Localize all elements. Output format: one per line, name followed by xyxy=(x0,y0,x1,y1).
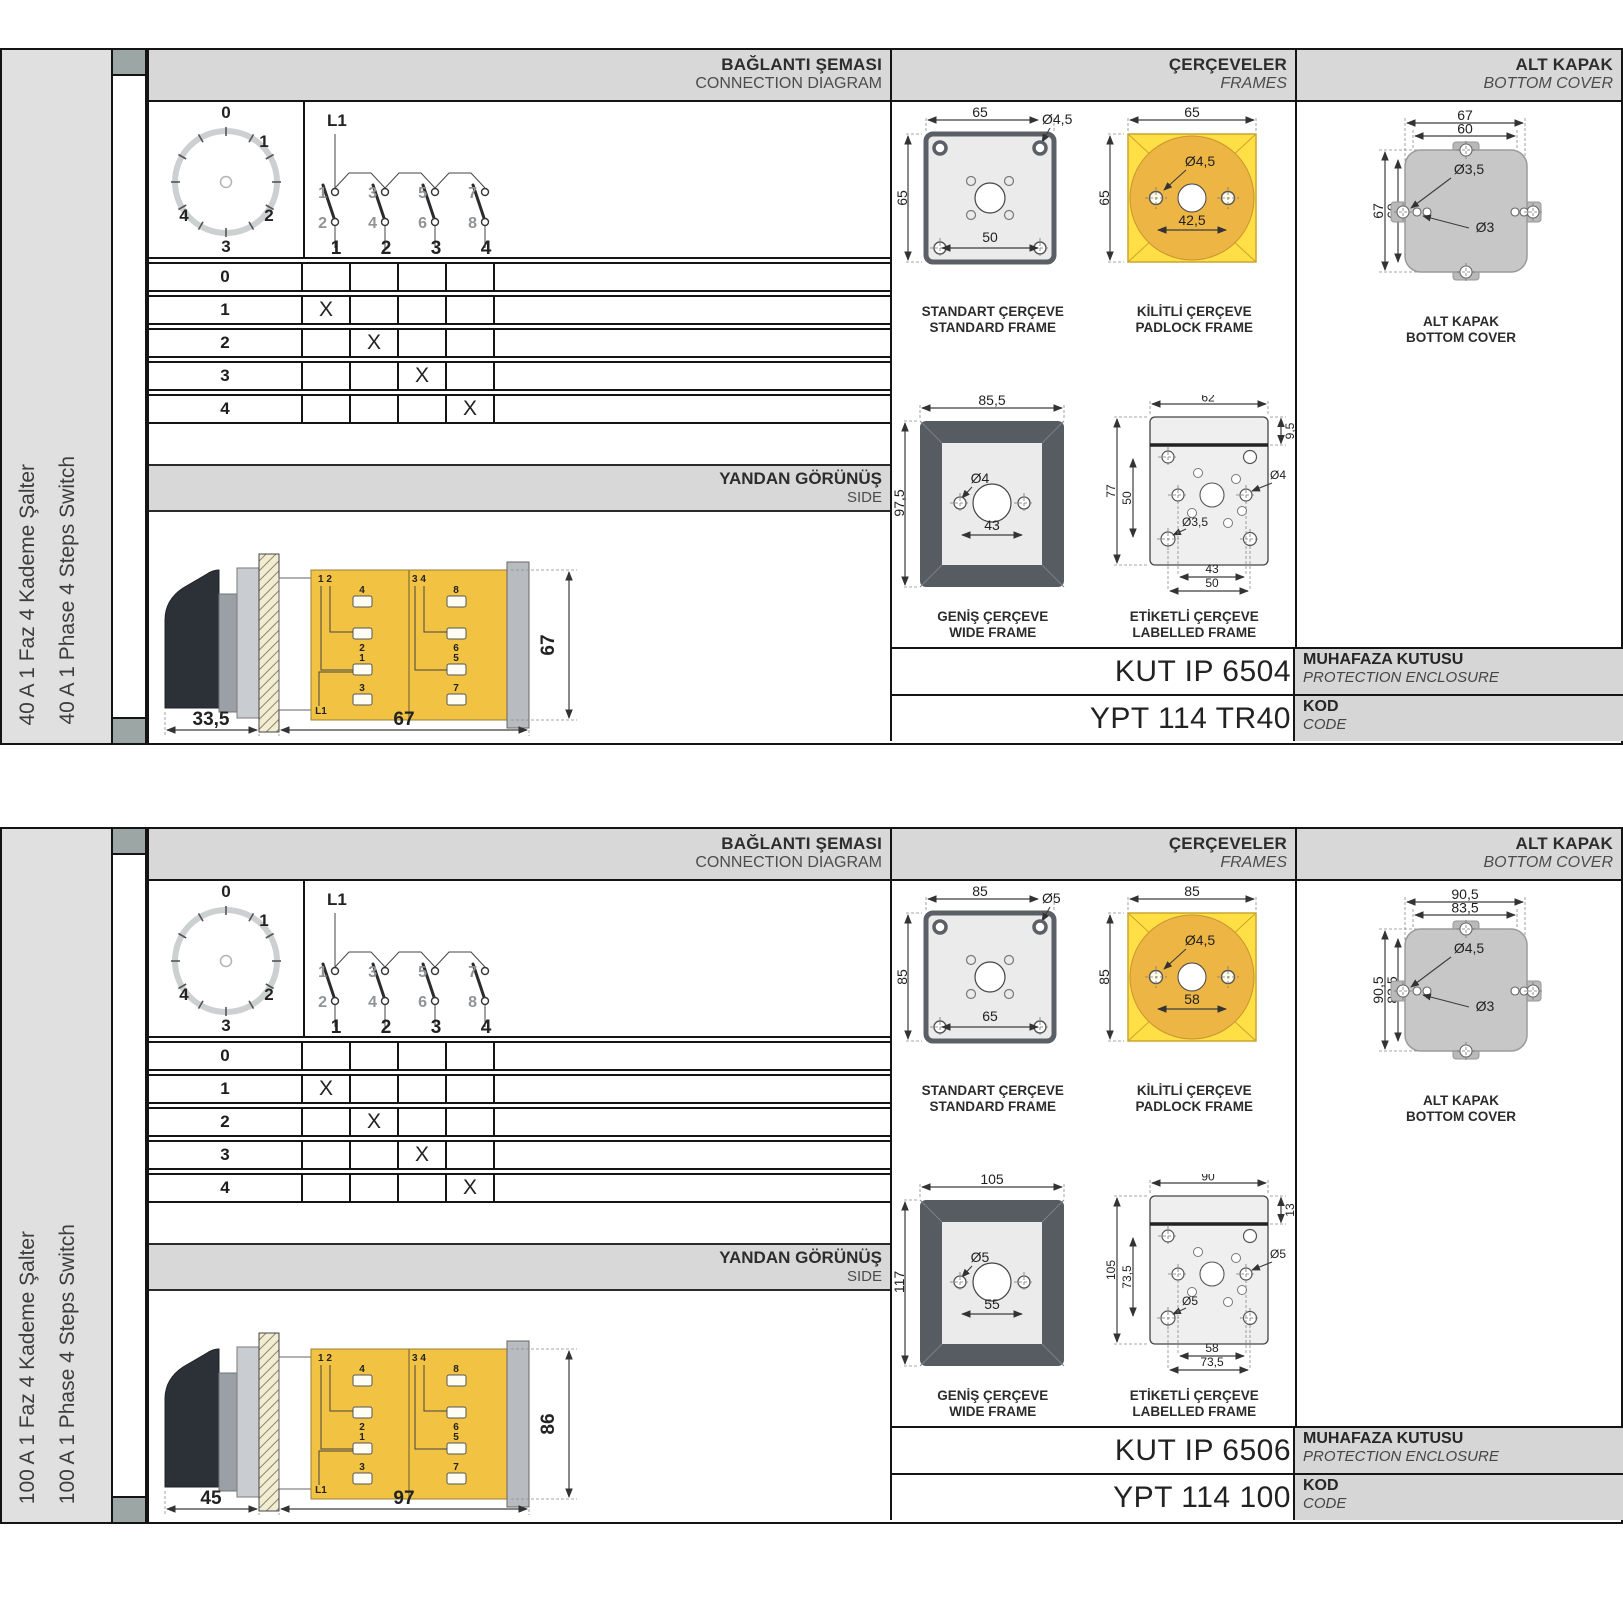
terminal-3: 3 xyxy=(359,1462,365,1473)
hole-left-label: Ø3,5 xyxy=(1182,515,1208,529)
side-view-title-en: SIDE xyxy=(149,489,882,506)
contact-7: 7 xyxy=(468,185,477,202)
pole-4: 4 xyxy=(481,238,492,257)
hole2-label: Ø3 xyxy=(1476,219,1495,235)
code-row: YPT 114 TR40 KOD CODE xyxy=(892,694,1623,741)
mark-cell xyxy=(447,1142,495,1168)
contact-poles xyxy=(323,185,489,248)
caption-tr: GENİŞ ÇERÇEVE xyxy=(937,1388,1048,1404)
feed-label: L1 xyxy=(327,111,347,130)
standard-frame: 65 Ø4,5 65 xyxy=(892,106,1094,336)
dim-inner: 50 xyxy=(1120,491,1134,505)
mark-cell xyxy=(447,264,495,290)
enclosure-code: KUT IP 6506 xyxy=(892,1428,1293,1473)
side-view-header: YANDAN GÖRÜNÜŞ SIDE xyxy=(149,1243,890,1291)
header-band: BAĞLANTI ŞEMASI CONNECTION DIAGRAM ÇERÇE… xyxy=(149,829,1621,881)
caption-en: BOTTOM COVER xyxy=(1406,330,1516,346)
dim-height: 86 xyxy=(538,1413,559,1434)
dim-pitch: 50 xyxy=(982,229,998,245)
hole-left-label: Ø5 xyxy=(1182,1294,1198,1308)
mark-cell xyxy=(399,396,447,422)
connection-panel: 0 1 2 3 4 L1 xyxy=(149,881,892,1520)
table-row: 1 X xyxy=(149,295,890,325)
dim-width: 62 xyxy=(1201,395,1215,405)
switch-dial: 0 1 2 3 4 xyxy=(149,102,305,257)
dial-pos-1: 1 xyxy=(259,132,268,151)
product-label-tr: 40 A 1 Faz 4 Kademe Şalter xyxy=(16,464,40,726)
header-frames-tr: ÇERÇEVELER xyxy=(892,834,1287,854)
terminal-34: 3 4 xyxy=(412,574,426,585)
hole-right-label: Ø4 xyxy=(1270,468,1286,482)
mark-cell xyxy=(399,1175,447,1201)
mark-cell xyxy=(447,1109,495,1135)
code-label: KOD CODE xyxy=(1293,1475,1623,1520)
side-view-header: YANDAN GÖRÜNÜŞ SIDE xyxy=(149,464,890,512)
caption-en: STANDARD FRAME xyxy=(922,1099,1064,1115)
mark-cell xyxy=(351,297,399,323)
dial-pos-4: 4 xyxy=(179,985,189,1004)
row-label-0: 0 xyxy=(149,264,303,290)
table-row: 0 xyxy=(149,1041,890,1071)
catalog-page: 40 A 1 Faz 4 Kademe Şalter 40 A 1 Phase … xyxy=(0,0,1623,1524)
caption-tr: KİLİTLİ ÇERÇEVE xyxy=(1136,304,1254,320)
dim-handle: 33,5 xyxy=(193,709,230,730)
dim-pitch: 55 xyxy=(984,1296,1000,1312)
contact-6: 6 xyxy=(418,994,427,1011)
header-cover: ALT KAPAK BOTTOM COVER xyxy=(1297,829,1621,879)
hole-dia-label: Ø4,5 xyxy=(1185,153,1216,169)
mark-cell xyxy=(447,297,495,323)
dial-pos-2: 2 xyxy=(264,206,273,225)
caption-en: PADLOCK FRAME xyxy=(1136,320,1254,336)
terminal-l1: L1 xyxy=(315,1485,327,1496)
mark-cell xyxy=(399,1109,447,1135)
product-label-en: 40 A 1 Phase 4 Steps Switch xyxy=(56,456,80,725)
spine-square-bottom xyxy=(113,1496,145,1522)
caption-en: WIDE FRAME xyxy=(937,1404,1048,1420)
caption-tr: STANDART ÇERÇEVE xyxy=(922,1083,1064,1099)
contact-diagram: L1 xyxy=(305,881,890,1036)
dial-pos-2: 2 xyxy=(264,985,273,1004)
spine-column xyxy=(113,48,147,745)
padlock-frame: 65 65 Ø4,5 xyxy=(1094,106,1296,336)
mark-cell: X xyxy=(447,396,495,422)
table-row: 0 xyxy=(149,262,890,292)
code-rows: KUT IP 6504 MUHAFAZA KUTUSU PROTECTION E… xyxy=(892,647,1623,741)
pole-1: 1 xyxy=(331,1017,342,1036)
contact-2: 2 xyxy=(318,994,327,1011)
terminal-5: 5 xyxy=(453,653,459,664)
terminal-8: 8 xyxy=(453,585,459,596)
dim-height: 67 xyxy=(538,634,559,655)
enclosure-code: KUT IP 6504 xyxy=(892,649,1293,694)
mark-cell xyxy=(303,1043,351,1069)
header-frames-tr: ÇERÇEVELER xyxy=(892,55,1287,75)
enclosure-label: MUHAFAZA KUTUSU PROTECTION ENCLOSURE xyxy=(1293,1428,1623,1473)
enclosure-label-en: PROTECTION ENCLOSURE xyxy=(1303,669,1623,686)
code-row: YPT 114 100 KOD CODE xyxy=(892,1473,1623,1520)
hole-dia-label: Ø5 xyxy=(971,1249,990,1265)
dim-top: 13 xyxy=(1283,1203,1295,1217)
product-sidebar-s1: 100 A 1 Faz 4 Kademe Şalter 100 A 1 Phas… xyxy=(0,827,113,1524)
header-band: BAĞLANTI ŞEMASI CONNECTION DIAGRAM ÇERÇE… xyxy=(149,50,1621,102)
terminal-1: 1 xyxy=(359,1432,365,1443)
side-view-drawing: 1 2 3 4 4 8 2 6 1 5 3 7 L1 xyxy=(149,512,890,740)
enclosure-label-tr: MUHAFAZA KUTUSU xyxy=(1303,1430,1623,1448)
caption-en: STANDARD FRAME xyxy=(922,320,1064,336)
enclosure-row: KUT IP 6504 MUHAFAZA KUTUSU PROTECTION E… xyxy=(892,647,1623,694)
header-frames-en: FRAMES xyxy=(892,75,1287,93)
bottom-cover-drawing: 90,5 83,5 90,5 83,5 xyxy=(1299,889,1623,1091)
contact-6: 6 xyxy=(418,215,427,232)
enclosure-row: KUT IP 6506 MUHAFAZA KUTUSU PROTECTION E… xyxy=(892,1426,1623,1473)
header-connection-tr: BAĞLANTI ŞEMASI xyxy=(149,55,882,75)
header-connection-tr: BAĞLANTI ŞEMASI xyxy=(149,834,882,854)
table-row: 3 X xyxy=(149,361,890,391)
pole-1: 1 xyxy=(331,238,342,257)
mark-cell xyxy=(399,297,447,323)
code-label-tr: KOD xyxy=(1303,698,1623,716)
hole-dia-label: Ø4,5 xyxy=(1042,111,1073,127)
dim-pitch: 58 xyxy=(1184,991,1200,1007)
caption-en: LABELLED FRAME xyxy=(1130,625,1259,641)
row-label-1: 1 xyxy=(149,1076,303,1102)
hole-dia-label: Ø4 xyxy=(971,470,990,486)
dim-pitch2: 50 xyxy=(1205,576,1219,590)
section-content: BAĞLANTI ŞEMASI CONNECTION DIAGRAM ÇERÇE… xyxy=(147,48,1623,745)
dim-height: 85 xyxy=(894,969,910,985)
mark-cell xyxy=(399,264,447,290)
hole1-label: Ø4,5 xyxy=(1454,940,1485,956)
code-label-en: CODE xyxy=(1303,716,1623,733)
header-connection: BAĞLANTI ŞEMASI CONNECTION DIAGRAM xyxy=(149,50,892,100)
bottom-cover-drawing: 67 60 67 60 xyxy=(1299,110,1623,312)
product-code: YPT 114 TR40 xyxy=(892,696,1293,741)
caption-en: BOTTOM COVER xyxy=(1406,1109,1516,1125)
dial-pos-4: 4 xyxy=(179,206,189,225)
code-label-tr: KOD xyxy=(1303,1477,1623,1495)
dim-height: 85 xyxy=(1096,969,1112,985)
terminal-l1: L1 xyxy=(315,706,327,717)
dim-handle: 45 xyxy=(200,1488,222,1509)
dim-height: 77 xyxy=(1104,484,1118,498)
table-row: 4 X xyxy=(149,1173,890,1203)
mark-cell xyxy=(303,1175,351,1201)
terminal-7: 7 xyxy=(453,1462,459,1473)
switch-dial: 0 1 2 3 4 xyxy=(149,881,305,1036)
dim-width: 65 xyxy=(972,106,988,120)
caption-en: WIDE FRAME xyxy=(937,625,1048,641)
mark-cell: X xyxy=(399,363,447,389)
enclosure-label-en: PROTECTION ENCLOSURE xyxy=(1303,1448,1623,1465)
labelled-frame: 90 13 105 73,5 xyxy=(1094,1174,1296,1420)
product-sidebar-s0: 40 A 1 Faz 4 Kademe Şalter 40 A 1 Phase … xyxy=(0,48,113,745)
contact-5: 5 xyxy=(418,185,427,202)
mark-cell: X xyxy=(399,1142,447,1168)
mark-cell xyxy=(303,1142,351,1168)
dim-width: 85 xyxy=(1184,885,1200,899)
feed-label: L1 xyxy=(327,890,347,909)
spine-column xyxy=(113,827,147,1524)
caption-tr: GENİŞ ÇERÇEVE xyxy=(937,609,1048,625)
mark-cell xyxy=(351,396,399,422)
caption-en: LABELLED FRAME xyxy=(1130,1404,1259,1420)
contact-8: 8 xyxy=(468,994,477,1011)
contact-4: 4 xyxy=(368,215,377,232)
row-label-2: 2 xyxy=(149,1109,303,1135)
code-rows: KUT IP 6506 MUHAFAZA KUTUSU PROTECTION E… xyxy=(892,1426,1623,1520)
product-code: YPT 114 100 xyxy=(892,1475,1293,1520)
dim-width: 65 xyxy=(1184,106,1200,120)
mark-cell xyxy=(399,330,447,356)
dim-height: 117 xyxy=(892,1270,907,1293)
header-cover-en: BOTTOM COVER xyxy=(1297,75,1613,93)
dim-pitch: 65 xyxy=(982,1008,998,1024)
terminal-12: 1 2 xyxy=(318,1353,332,1364)
header-frames: ÇERÇEVELER FRAMES xyxy=(892,50,1297,100)
contact-8: 8 xyxy=(468,215,477,232)
table-row: 3 X xyxy=(149,1140,890,1170)
contact-2: 2 xyxy=(318,215,327,232)
side-view-title-en: SIDE xyxy=(149,1268,882,1285)
mark-cell xyxy=(303,363,351,389)
hole-right-label: Ø5 xyxy=(1270,1247,1286,1261)
dial-pos-0: 0 xyxy=(221,882,230,901)
terminal-34: 3 4 xyxy=(412,1353,426,1364)
mark-cell xyxy=(399,1076,447,1102)
product-section-s0: 40 A 1 Faz 4 Kademe Şalter 40 A 1 Phase … xyxy=(0,48,1623,745)
section-content: BAĞLANTI ŞEMASI CONNECTION DIAGRAM ÇERÇE… xyxy=(147,827,1623,1524)
pole-4: 4 xyxy=(481,1017,492,1036)
mark-cell xyxy=(351,1043,399,1069)
cover-panel: 90,5 83,5 90,5 83,5 xyxy=(1295,881,1623,1426)
side-view-drawing: 1 2 3 4 4 8 2 6 1 5 3 7 L1 xyxy=(149,1291,890,1519)
row-label-3: 3 xyxy=(149,1142,303,1168)
mark-cell xyxy=(351,363,399,389)
mark-cell: X xyxy=(303,297,351,323)
mark-cell xyxy=(447,363,495,389)
frames-panel: 65 Ø4,5 65 xyxy=(892,102,1295,647)
row-label-0: 0 xyxy=(149,1043,303,1069)
cover-panel: 67 60 67 60 xyxy=(1295,102,1623,647)
mark-cell xyxy=(447,1043,495,1069)
header-cover-tr: ALT KAPAK xyxy=(1297,55,1613,75)
dim-w2: 60 xyxy=(1457,121,1473,137)
header-cover: ALT KAPAK BOTTOM COVER xyxy=(1297,50,1621,100)
row-label-2: 2 xyxy=(149,330,303,356)
pole-numbers: 1 2 3 4 xyxy=(331,238,492,257)
dim-pitch: 42,5 xyxy=(1178,212,1205,228)
mark-cell xyxy=(351,1142,399,1168)
hole1-label: Ø3,5 xyxy=(1454,161,1485,177)
contact-4: 4 xyxy=(368,994,377,1011)
dim-body: 67 xyxy=(393,709,414,730)
mark-cell xyxy=(351,1175,399,1201)
header-cover-tr: ALT KAPAK xyxy=(1297,834,1613,854)
terminal-5: 5 xyxy=(453,1432,459,1443)
mark-cell: X xyxy=(447,1175,495,1201)
mark-cell xyxy=(303,330,351,356)
header-connection: BAĞLANTI ŞEMASI CONNECTION DIAGRAM xyxy=(149,829,892,879)
caption-en: PADLOCK FRAME xyxy=(1136,1099,1254,1115)
dim-body: 97 xyxy=(393,1488,414,1509)
hole-dia-label: Ø5 xyxy=(1042,890,1061,906)
mark-cell xyxy=(303,1109,351,1135)
wide-frame: 105 117 Ø5 xyxy=(892,1174,1094,1420)
dim-top: 9,5 xyxy=(1283,422,1295,439)
dim-width: 85 xyxy=(972,885,988,899)
dim-w2: 83,5 xyxy=(1451,900,1478,916)
header-frames-en: FRAMES xyxy=(892,854,1287,872)
side-view-title-tr: YANDAN GÖRÜNÜŞ xyxy=(149,469,882,489)
code-label: KOD CODE xyxy=(1293,696,1623,741)
mark-cell xyxy=(351,264,399,290)
contact-3: 3 xyxy=(368,185,377,202)
mark-cell xyxy=(447,1076,495,1102)
mark-cell: X xyxy=(351,330,399,356)
spine-square-bottom xyxy=(113,717,145,743)
dim-height: 105 xyxy=(1104,1259,1118,1279)
caption-tr: KİLİTLİ ÇERÇEVE xyxy=(1136,1083,1254,1099)
terminal-7: 7 xyxy=(453,683,459,694)
side-view-title-tr: YANDAN GÖRÜNÜŞ xyxy=(149,1248,882,1268)
enclosure-label-tr: MUHAFAZA KUTUSU xyxy=(1303,651,1623,669)
connection-panel: 0 1 2 3 4 L1 xyxy=(149,102,892,741)
table-row: 4 X xyxy=(149,394,890,424)
dial-pos-3: 3 xyxy=(221,237,230,256)
contact-numbers: 1 3 5 7 2 4 6 8 xyxy=(318,185,477,232)
product-label-en: 100 A 1 Phase 4 Steps Switch xyxy=(56,1224,80,1504)
pole-2: 2 xyxy=(381,238,392,257)
frames-panel: 85 Ø5 85 xyxy=(892,881,1295,1426)
contact-diagram: L1 xyxy=(305,102,890,257)
product-section-s1: 100 A 1 Faz 4 Kademe Şalter 100 A 1 Phas… xyxy=(0,827,1623,1524)
table-row: 2 X xyxy=(149,1107,890,1137)
standard-frame: 85 Ø5 85 xyxy=(892,885,1094,1115)
terminal-1: 1 xyxy=(359,653,365,664)
contact-1: 1 xyxy=(318,964,327,981)
terminal-3: 3 xyxy=(359,683,365,694)
terminal-4: 4 xyxy=(359,1364,365,1375)
table-row: 2 X xyxy=(149,328,890,358)
mark-cell: X xyxy=(351,1109,399,1135)
hole2-label: Ø3 xyxy=(1476,998,1495,1014)
contact-3: 3 xyxy=(368,964,377,981)
dim-height: 65 xyxy=(1096,190,1112,206)
mark-cell xyxy=(351,1076,399,1102)
dim-height: 97,5 xyxy=(892,489,907,516)
header-cover-en: BOTTOM COVER xyxy=(1297,854,1613,872)
caption-tr: ALT KAPAK xyxy=(1406,314,1516,330)
mark-cell xyxy=(399,1043,447,1069)
terminal-4: 4 xyxy=(359,585,365,596)
labelled-frame: 62 9,5 77 50 xyxy=(1094,395,1296,641)
caption-tr: ETİKETLİ ÇERÇEVE xyxy=(1130,609,1259,625)
terminal-12: 1 2 xyxy=(318,574,332,585)
pole-3: 3 xyxy=(431,1017,442,1036)
dial-pos-1: 1 xyxy=(259,911,268,930)
row-label-1: 1 xyxy=(149,297,303,323)
dial-pos-0: 0 xyxy=(221,103,230,122)
caption-tr: ETİKETLİ ÇERÇEVE xyxy=(1130,1388,1259,1404)
row-label-4: 4 xyxy=(149,396,303,422)
caption-tr: STANDART ÇERÇEVE xyxy=(922,304,1064,320)
row-label-4: 4 xyxy=(149,1175,303,1201)
contact-1: 1 xyxy=(318,185,327,202)
dim-pitch2: 73,5 xyxy=(1200,1355,1224,1369)
padlock-frame: 85 85 Ø4,5 xyxy=(1094,885,1296,1115)
dim-inner: 73,5 xyxy=(1120,1265,1134,1289)
dim-pitch1: 58 xyxy=(1205,1341,1219,1355)
dim-width: 90 xyxy=(1201,1174,1215,1184)
mark-cell: X xyxy=(303,1076,351,1102)
dial-pos-3: 3 xyxy=(221,1016,230,1035)
dim-pitch: 43 xyxy=(984,517,1000,533)
spine-square-top xyxy=(113,829,145,855)
pole-2: 2 xyxy=(381,1017,392,1036)
pole-3: 3 xyxy=(431,238,442,257)
contact-7: 7 xyxy=(468,964,477,981)
enclosure-label: MUHAFAZA KUTUSU PROTECTION ENCLOSURE xyxy=(1293,649,1623,694)
dim-height: 65 xyxy=(894,190,910,206)
dim-pitch1: 43 xyxy=(1205,562,1219,576)
contact-5: 5 xyxy=(418,964,427,981)
hole-dia-label: Ø4,5 xyxy=(1185,932,1216,948)
contact-poles xyxy=(323,964,489,1027)
terminal-8: 8 xyxy=(453,1364,459,1375)
mark-cell xyxy=(303,396,351,422)
dim-width: 85,5 xyxy=(979,395,1006,408)
contact-numbers: 1 3 5 7 2 4 6 8 xyxy=(318,964,477,1011)
mark-cell xyxy=(447,330,495,356)
wide-frame: 85,5 97,5 Ø4 xyxy=(892,395,1094,641)
row-label-3: 3 xyxy=(149,363,303,389)
pole-numbers: 1 2 3 4 xyxy=(331,1017,492,1036)
switching-table: 0 1 X xyxy=(149,1041,890,1203)
header-frames: ÇERÇEVELER FRAMES xyxy=(892,829,1297,879)
header-connection-en: CONNECTION DIAGRAM xyxy=(149,75,882,93)
mark-cell xyxy=(303,264,351,290)
product-label-tr: 100 A 1 Faz 4 Kademe Şalter xyxy=(16,1231,40,1504)
dim-width: 105 xyxy=(981,1174,1005,1187)
switching-table: 0 1 X xyxy=(149,262,890,424)
code-label-en: CODE xyxy=(1303,1495,1623,1512)
header-connection-en: CONNECTION DIAGRAM xyxy=(149,854,882,872)
table-row: 1 X xyxy=(149,1074,890,1104)
caption-tr: ALT KAPAK xyxy=(1406,1093,1516,1109)
spine-square-top xyxy=(113,50,145,76)
